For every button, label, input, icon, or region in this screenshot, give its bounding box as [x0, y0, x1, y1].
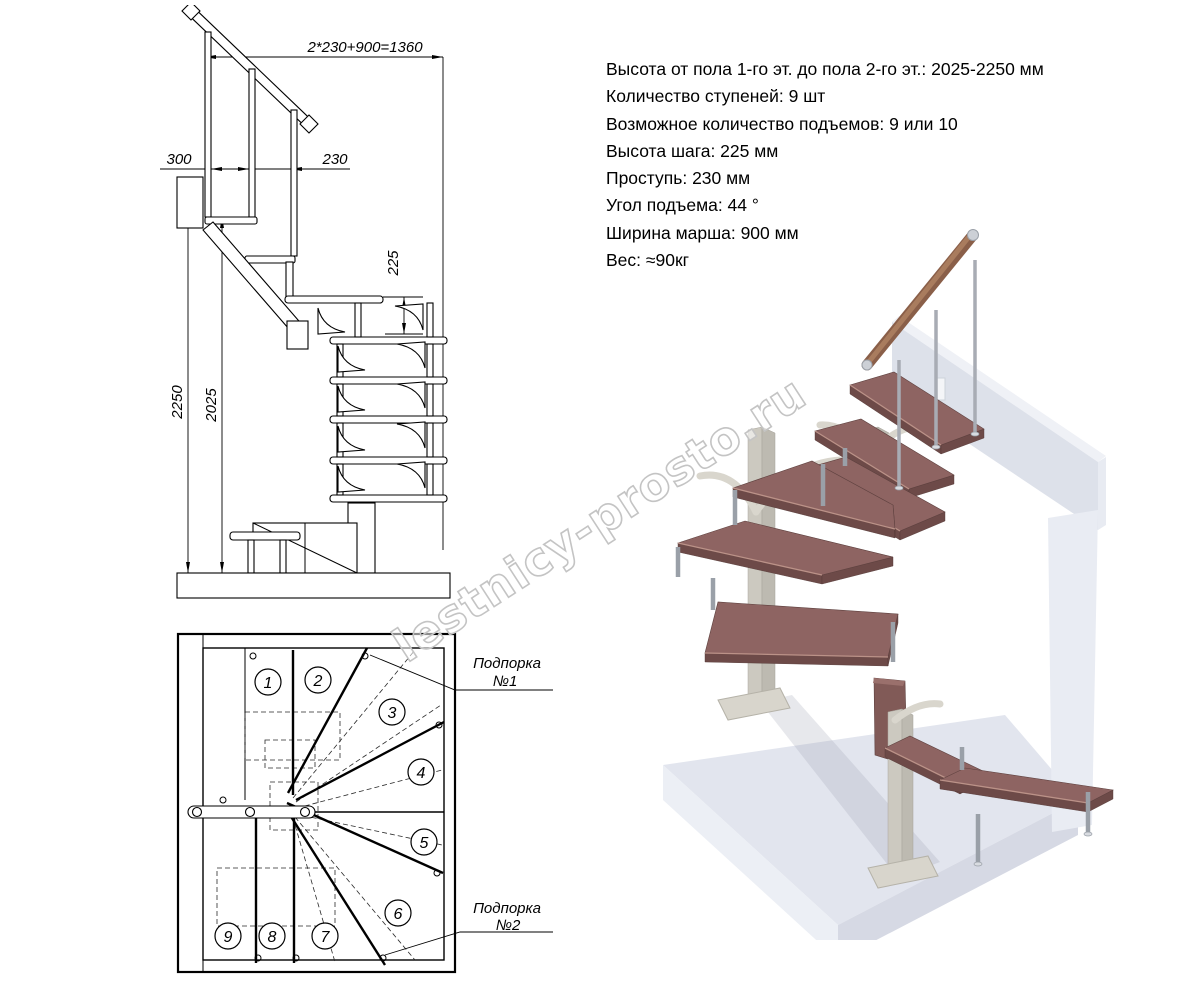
dim-height-max-text: 2250	[169, 385, 186, 420]
spec-line: Проступь: 230 мм	[606, 165, 1166, 192]
spec-line: Возможное количество подъемов: 9 или 10	[606, 111, 1166, 138]
plan-view: 1 2 3 4 5 6 7 8 9 Подпорка №1 Подпорка №…	[175, 630, 560, 975]
base-slab	[177, 573, 450, 598]
dim-height-min-text: 2025	[203, 388, 220, 423]
handrail-cap	[862, 360, 872, 370]
dim-rise-text: 225	[385, 250, 402, 277]
support2-label-line1: Подпорка	[473, 900, 541, 917]
dim-rise-225: 225	[383, 250, 423, 334]
tread-5	[678, 521, 893, 584]
wall-bracket	[177, 177, 203, 228]
bottom-steps	[230, 523, 357, 573]
spec-line: Ширина марша: 900 мм	[606, 220, 1166, 247]
spec-line: Вес: ≈90кг	[606, 247, 1166, 274]
plan-step-number: 5	[420, 835, 429, 852]
spec-line: Угол подъема: 44 °	[606, 192, 1166, 219]
support1-label-line1: Подпорка	[473, 655, 541, 672]
dim-height-2250: 2250	[169, 181, 190, 573]
plan-step-number: 8	[268, 929, 277, 946]
specs-block: Высота от пола 1-го эт. до пола 2-го эт.…	[606, 56, 1166, 274]
support-leader-1: Подпорка №1	[370, 655, 553, 690]
elevation-view: 2*230+900=1360 300 230 2250 2025	[75, 5, 465, 605]
plan-step-number: 9	[224, 929, 233, 946]
tread-4	[705, 602, 898, 666]
spec-line: Высота шага: 225 мм	[606, 138, 1166, 165]
dim-total-run: 2*230+900=1360	[205, 39, 443, 550]
dim-height-2025: 2025	[203, 217, 224, 573]
support2-label-line2: №2	[496, 917, 521, 934]
spec-line: Количество ступеней: 9 шт	[606, 83, 1166, 110]
plan-handrail-bar	[188, 806, 315, 818]
plan-step-number: 3	[388, 705, 397, 722]
plan-step-number: 6	[394, 906, 403, 923]
dim-total-text: 2*230+900=1360	[306, 39, 423, 56]
drawing-sheet: 2*230+900=1360 300 230 2250 2025	[0, 0, 1191, 993]
plan-step-number: 7	[321, 929, 331, 946]
plan-step-number: 4	[417, 765, 426, 782]
render-3d	[640, 210, 1191, 940]
spec-line: Высота от пола 1-го эт. до пола 2-го эт.…	[606, 56, 1166, 83]
plan-step-number: 2	[313, 673, 323, 690]
dim-tread-text: 230	[321, 151, 348, 168]
support1-label-line2: №1	[493, 673, 518, 690]
dim-overhang-text: 300	[166, 151, 192, 168]
plan-step-number: 1	[264, 675, 273, 692]
